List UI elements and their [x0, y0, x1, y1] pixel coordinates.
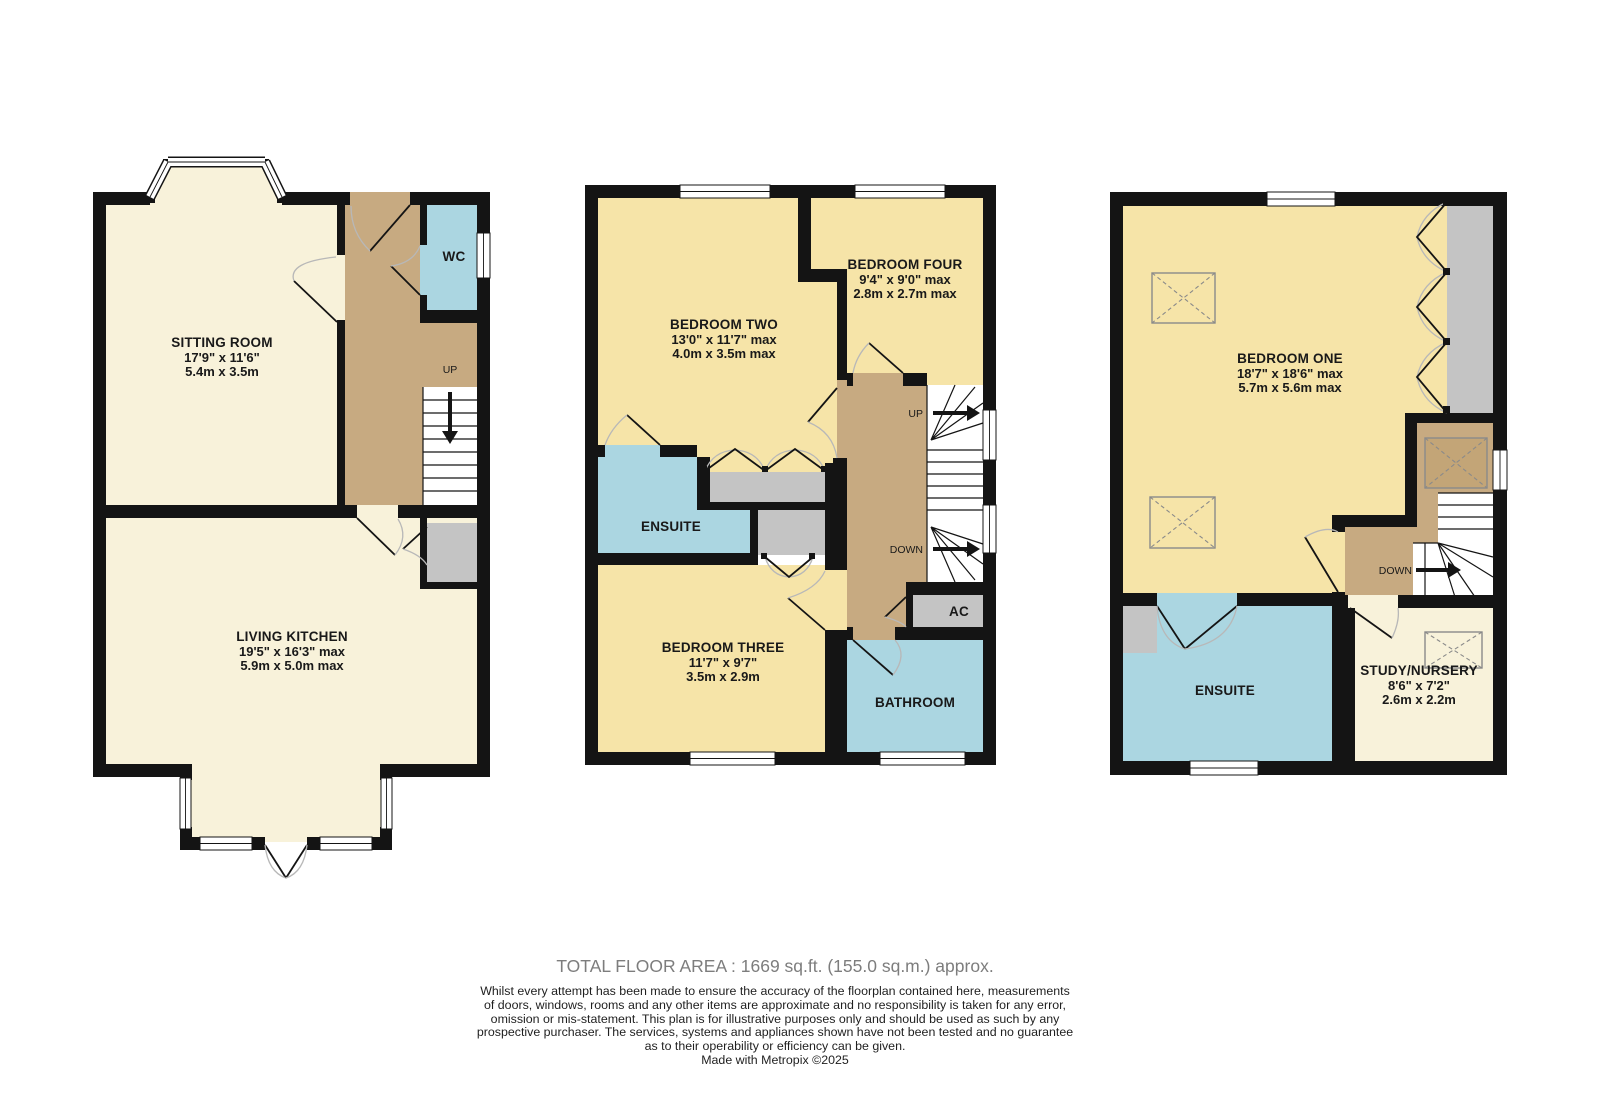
bedroom-two-dims-imperial: 13'0" x 11'7" max: [671, 332, 777, 347]
room-label-ensuite-first: ENSUITE: [641, 519, 701, 534]
room-label-bedroom-two: BEDROOM TWO: [670, 317, 778, 332]
disclaimer-line: Whilst every attempt has been made to en…: [0, 985, 1550, 999]
room-label-ensuite-second: ENSUITE: [1195, 683, 1255, 698]
stairs-up-label-first: UP: [908, 408, 923, 420]
bedroom-three-dims-imperial: 11'7" x 9'7": [689, 655, 757, 670]
living-kitchen-dims-imperial: 19'5" x 16'3" max: [239, 644, 346, 659]
floorplan-first-floor: BEDROOM TWO 13'0" x 11'7" max 4.0m x 3.5…: [575, 175, 1010, 775]
stairs-up-label: UP: [443, 364, 458, 376]
room-label-wc: WC: [443, 249, 466, 264]
room-label-living-kitchen: LIVING KITCHEN: [236, 629, 348, 644]
living-kitchen-dims-metric: 5.9m x 5.0m max: [240, 658, 344, 673]
room-label-study-nursery: STUDY/NURSERY: [1360, 663, 1478, 678]
disclaimer-line: as to their operability or efficiency ca…: [0, 1040, 1550, 1054]
room-label-bedroom-one: BEDROOM ONE: [1237, 351, 1343, 366]
floorplan-ground-floor: SITTING ROOM 17'9" x 11'6" 5.4m x 3.5m W…: [80, 145, 500, 885]
study-nursery-dims-metric: 2.6m x 2.2m: [1382, 692, 1456, 707]
stairs-down-label-second: DOWN: [1379, 565, 1412, 577]
sitting-room-dims-imperial: 17'9" x 11'6": [184, 350, 260, 365]
metropix-credit: Made with Metropix ©2025: [0, 1054, 1550, 1068]
room-label-sitting-room: SITTING ROOM: [171, 335, 272, 350]
floorplan-second-floor: BEDROOM ONE 18'7" x 18'6" max 5.7m x 5.6…: [1100, 185, 1520, 785]
disclaimer-line: omission or mis-statement. This plan is …: [0, 1013, 1550, 1027]
bedroom-one-dims-imperial: 18'7" x 18'6" max: [1237, 366, 1344, 381]
footer: TOTAL FLOOR AREA : 1669 sq.ft. (155.0 sq…: [0, 956, 1550, 1068]
room-label-bedroom-three: BEDROOM THREE: [662, 640, 785, 655]
total-floor-area: TOTAL FLOOR AREA : 1669 sq.ft. (155.0 sq…: [0, 956, 1550, 977]
disclaimer-line: of doors, windows, rooms and any other i…: [0, 999, 1550, 1013]
bedroom-four-dims-metric: 2.8m x 2.7m max: [853, 286, 957, 301]
study-nursery-dims-imperial: 8'6" x 7'2": [1388, 678, 1450, 693]
disclaimer: Whilst every attempt has been made to en…: [0, 985, 1550, 1054]
room-label-ac: AC: [949, 604, 969, 619]
disclaimer-line: prospective purchaser. The services, sys…: [0, 1026, 1550, 1040]
bedroom-two-dims-metric: 4.0m x 3.5m max: [672, 346, 776, 361]
bedroom-four-dims-imperial: 9'4" x 9'0" max: [859, 272, 951, 287]
floorplan-page: { "colors": { "wall": "#141414", "room_c…: [0, 0, 1600, 1093]
sitting-room-dims-metric: 5.4m x 3.5m: [185, 364, 259, 379]
room-label-bedroom-four: BEDROOM FOUR: [848, 257, 963, 272]
bedroom-one-dims-metric: 5.7m x 5.6m max: [1238, 380, 1342, 395]
bedroom-three-dims-metric: 3.5m x 2.9m: [686, 669, 760, 684]
room-label-bathroom: BATHROOM: [875, 695, 955, 710]
stairs-down-label-first: DOWN: [890, 544, 923, 556]
